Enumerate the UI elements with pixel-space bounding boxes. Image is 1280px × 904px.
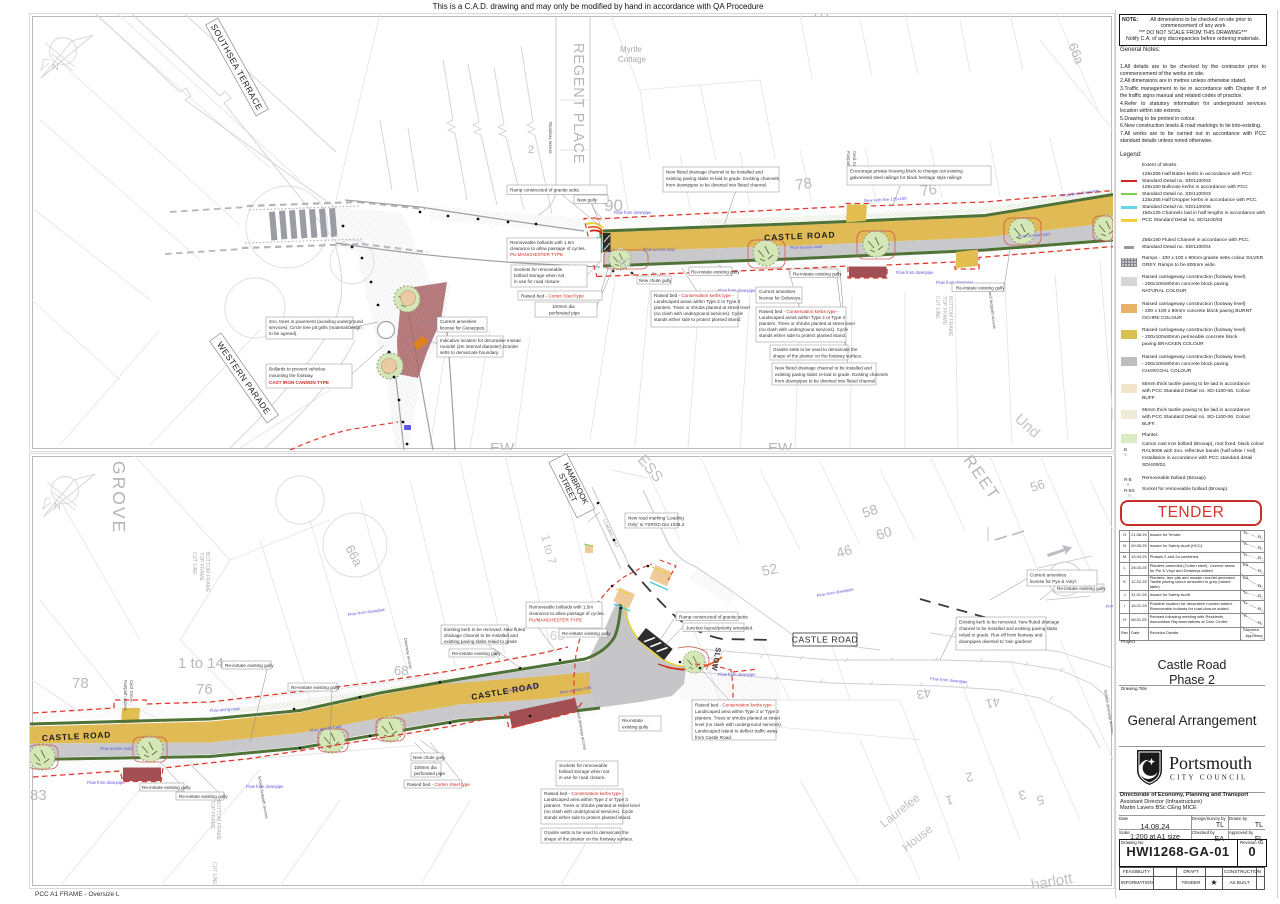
svg-text:to be agreed).: to be agreed).	[269, 331, 298, 336]
svg-text:Ramp constructed of granite se: Ramp constructed of granite setts.	[510, 188, 580, 193]
svg-text:TOP FRAME: TOP FRAME	[198, 552, 204, 582]
svg-text:existing paving slabs re-laid: existing paving slabs re-laid to grade. …	[775, 372, 889, 377]
svg-text:Flow from downpipe: Flow from downpipe	[816, 586, 854, 598]
svg-text:Landscaped area within Type 2: Landscaped area within Type 2 or Type 3	[695, 709, 779, 714]
svg-text:GROVE: GROVE	[109, 461, 129, 534]
svg-text:BOTTOM FRAME: BOTTOM FRAME	[215, 800, 221, 841]
svg-text:planters. Trees or shrubs plan: planters. Trees or shrubs planted at str…	[654, 305, 750, 310]
svg-text:existing gully: existing gully	[622, 725, 649, 730]
svg-text:WESTERN PARADE: WESTERN PARADE	[215, 340, 273, 416]
svg-text:School driveway access: School driveway access	[1103, 689, 1113, 734]
svg-text:CUT LINE: CUT LINE	[934, 296, 940, 319]
svg-text:shape of the planter on the fo: shape of the planter on the footway surf…	[773, 354, 862, 359]
svg-text:relaid to grade. Run-off from: relaid to grade. Run-off from footway an…	[959, 633, 1043, 638]
svg-text:Flow across road: Flow across road	[100, 746, 133, 751]
svg-text:Raised bed - Conservation kerb: Raised bed - Conservation kerbs type -	[654, 293, 734, 298]
svg-text:2: 2	[528, 144, 534, 156]
svg-text:2: 2	[964, 769, 974, 785]
svg-text:87: 87	[618, 254, 635, 272]
svg-text:PU MANCHESTER TYPE: PU MANCHESTER TYPE	[510, 252, 563, 257]
svg-text:Re-instate existing gully: Re-instate existing gully	[562, 631, 611, 636]
svg-text:CAST IRON CANNON TYPE: CAST IRON CANNON TYPE	[269, 380, 329, 385]
svg-text:Flow from downpipe: Flow from downpipe	[1105, 599, 1113, 609]
svg-text:2no. trees in pavement (avoidi: 2no. trees in pavement (avoiding undergr…	[269, 319, 363, 324]
svg-text:SOUTHSEA TERRACE: SOUTHSEA TERRACE	[209, 22, 265, 112]
svg-text:New road marking 'Loading: New road marking 'Loading	[628, 516, 684, 521]
svg-text:Cottage: Cottage	[618, 55, 647, 64]
svg-text:Raised bed - Conservation kerb: Raised bed - Conservation kerbs type -	[544, 791, 624, 796]
svg-text:REGENT PLACE: REGENT PLACE	[570, 43, 586, 164]
svg-text:harlott: harlott	[1030, 870, 1075, 888]
svg-text:Re-instate existing gully: Re-instate existing gully	[179, 794, 228, 799]
svg-text:1 to 7: 1 to 7	[538, 533, 559, 566]
svg-text:Junction layout/priority amend: Junction layout/priority amended.	[686, 626, 753, 631]
svg-text:(no clash with underground ser: (no clash with underground services). Cy…	[544, 809, 634, 814]
svg-text:Flow from downpipe: Flow from downpipe	[246, 784, 284, 789]
svg-text:stands either side to protect: stands either side to protect planted is…	[759, 333, 846, 338]
svg-text:Landscaped areas within Type 2: Landscaped areas within Type 2 or Type 3	[759, 315, 846, 320]
svg-text:Existing kerb to be removed. N: Existing kerb to be removed. New fluted	[444, 627, 526, 632]
svg-text:mounting the footway.: mounting the footway.	[269, 373, 314, 378]
svg-text:Footpath access: Footpath access	[123, 680, 128, 711]
svg-text:Current amenities: Current amenities	[1030, 573, 1067, 578]
svg-text:ESS: ESS	[634, 454, 666, 486]
svg-text:78: 78	[72, 675, 89, 692]
svg-text:Re-instate existing gully: Re-instate existing gully	[291, 685, 340, 690]
svg-text:level (no clash with undergrou: level (no clash with underground service…	[695, 722, 782, 727]
svg-text:bollard storage when not: bollard storage when not	[559, 769, 610, 774]
svg-text:clearance to allow passage of: clearance to allow passage of cycles.	[510, 246, 586, 251]
svg-text:(no clash with underground ser: (no clash with underground services). Cy…	[654, 311, 744, 316]
svg-text:56: 56	[1028, 476, 1046, 495]
svg-text:Sockets for removeable: Sockets for removeable	[559, 763, 608, 768]
svg-text:Re-instate existing gully: Re-instate existing gully	[142, 785, 191, 790]
svg-text:perforated pipe: perforated pipe	[414, 771, 445, 776]
svg-text:New chute gully: New chute gully	[413, 755, 446, 760]
svg-text:TOP FRAME: TOP FRAME	[941, 296, 947, 326]
svg-text:Flow from downpipe: Flow from downpipe	[347, 607, 385, 617]
svg-text:in use for road closure.: in use for road closure.	[559, 775, 606, 780]
svg-text:BOTTOM FRAME: BOTTOM FRAME	[204, 552, 210, 593]
svg-text:Sockets for removeable: Sockets for removeable	[514, 267, 563, 272]
svg-text:Landscaped island to deflect t: Landscaped island to deflect traffic awa…	[695, 729, 778, 734]
svg-text:from Castle Road.: from Castle Road.	[695, 735, 732, 740]
svg-text:76: 76	[196, 681, 213, 698]
svg-text:existing paving slabs re-laid: existing paving slabs re-laid to grade. …	[666, 176, 780, 181]
svg-text:stands either side to protect: stands either side to protect planted is…	[544, 815, 631, 820]
svg-text:46: 46	[834, 541, 854, 561]
svg-text:New kerb line 125x150: New kerb line 125x150	[864, 196, 907, 203]
svg-text:Indicative location for decora: Indicative location for decorative mosai…	[440, 338, 522, 343]
svg-text:Landscaped area within Type 2: Landscaped area within Type 2 or Type 3	[544, 797, 628, 802]
svg-text:Bollards to prevent vehicles: Bollards to prevent vehicles	[269, 367, 326, 372]
svg-text:SLOW: SLOW	[710, 647, 723, 673]
svg-text:66a: 66a	[342, 542, 366, 569]
svg-text:existing paving slabs relaid t: existing paving slabs relaid to grade	[444, 639, 517, 644]
svg-text:CUT LINE: CUT LINE	[211, 862, 217, 885]
svg-text:in use for road closure.: in use for road closure.	[514, 279, 561, 284]
svg-text:BOTTOM FRAME: BOTTOM FRAME	[947, 296, 953, 337]
svg-text:channel to be installed and ex: channel to be installed and existing pav…	[959, 626, 1058, 631]
svg-text:60: 60	[874, 523, 894, 543]
svg-text:Only' to TSRGD Dia 1028.3: Only' to TSRGD Dia 1028.3	[628, 522, 685, 527]
svg-text:Flow from downpipe: Flow from downpipe	[614, 210, 652, 215]
svg-text:Re-instate existing gully: Re-instate existing gully	[691, 270, 740, 275]
svg-text:58: 58	[860, 501, 880, 521]
svg-text:New chute gully: New chute gully	[639, 278, 672, 283]
svg-text:roundel (2m internal diameter): roundel (2m internal diameter).Granite	[440, 344, 518, 349]
svg-text:Raised bed - Conservation kerb: Raised bed - Conservation kerbs type -	[695, 703, 775, 708]
svg-text:Flow from downpipe: Flow from downpipe	[87, 780, 125, 785]
svg-text:Removeable bollards with 1.5m: Removeable bollards with 1.5m	[529, 605, 593, 610]
svg-text:license for Delaneys.: license for Delaneys.	[759, 296, 802, 301]
svg-text:Myrtle: Myrtle	[620, 45, 642, 54]
svg-text:drainage channel to be install: drainage channel to be installed and	[444, 633, 518, 638]
svg-text:Portsmouth: Portsmouth	[1169, 753, 1252, 773]
svg-text:TOP FRAME: TOP FRAME	[209, 800, 215, 830]
svg-text:Cecil Grove: Cecil Grove	[129, 680, 134, 703]
svg-text:from downpipes to be diverted: from downpipes to be diverted into flute…	[666, 183, 767, 188]
svg-text:43: 43	[915, 685, 932, 703]
svg-text:license for Pye & Vinyl.: license for Pye & Vinyl.	[1030, 579, 1077, 584]
svg-text:galvanised steel railings for: galvanised steel railings for black heri…	[850, 175, 963, 180]
svg-text:Landscaped areas within Type 2: Landscaped areas within Type 2 or Type 3	[654, 299, 741, 304]
svg-text:68: 68	[394, 663, 408, 678]
svg-text:41: 41	[984, 694, 1001, 712]
svg-text:license for Giuseppes.: license for Giuseppes.	[440, 326, 485, 331]
svg-text:100mm dia: 100mm dia	[414, 765, 437, 770]
svg-text:from downpipes to be diverted: from downpipes to be diverted into flute…	[775, 379, 876, 384]
svg-text:bollard storage when not: bollard storage when not	[514, 273, 565, 278]
svg-text:Raised bed - Corten Steel type: Raised bed - Corten Steel type	[521, 294, 584, 299]
svg-text:Re-instate: Re-instate	[622, 718, 643, 723]
svg-text:planters. Trees or shrubs plan: planters. Trees or shrubs planted at str…	[695, 716, 781, 721]
svg-text:(no clash with underground ser: (no clash with underground services). Cy…	[759, 327, 849, 332]
svg-text:perforated pipe: perforated pipe	[549, 311, 580, 316]
svg-text:1 to 14: 1 to 14	[178, 655, 224, 672]
svg-text:Raised bed - Corten Steel type: Raised bed - Corten Steel type	[407, 782, 470, 787]
svg-text:downpipes diverted to 'rain ga: downpipes diverted to 'rain gardens'	[959, 639, 1032, 644]
svg-text:Flow from downpipe: Flow from downpipe	[718, 672, 756, 677]
svg-text:Encourage private housing bloc: Encourage private housing block to chang…	[850, 169, 963, 174]
svg-text:Existing kerb to be removed. N: Existing kerb to be removed. New fluted …	[959, 620, 1060, 625]
svg-text:100mm dia: 100mm dia	[552, 304, 575, 309]
svg-text:School footpath access: School footpath access	[987, 286, 997, 330]
svg-text:66a: 66a	[1065, 41, 1087, 67]
svg-text:Ramp constructed of granite se: Ramp constructed of granite setts	[679, 615, 748, 620]
svg-text:Flow from downpipe: Flow from downpipe	[930, 676, 968, 684]
svg-text:Roadway access: Roadway access	[548, 122, 553, 154]
svg-text:clearance to allow passage of: clearance to allow passage of cycles.	[529, 611, 605, 616]
svg-text:111: 111	[812, 14, 831, 20]
svg-text:School footpath access: School footpath access	[257, 775, 269, 819]
svg-text:Re-instate existing gully: Re-instate existing gully	[793, 272, 842, 277]
svg-text:Current amenities: Current amenities	[759, 289, 796, 294]
svg-text:Current amenities: Current amenities	[440, 319, 477, 324]
svg-text:shape of the planter on the fo: shape of the planter on the footway surf…	[544, 837, 633, 842]
svg-text:Re-instate existing gully: Re-instate existing gully	[956, 286, 1005, 291]
svg-text:CITY COUNCIL: CITY COUNCIL	[1170, 774, 1248, 782]
svg-text:New fluted drainage channel to: New fluted drainage channel to be instal…	[775, 366, 872, 371]
svg-text:Re-instate existing gully: Re-instate existing gully	[452, 651, 501, 656]
svg-text:Flow from downpipe: Flow from downpipe	[896, 270, 934, 275]
svg-text:stands either side to protect: stands either side to protect planted is…	[654, 317, 741, 322]
svg-text:Raised bed - Conservation kerb: Raised bed - Conservation kerbs type -	[759, 309, 839, 314]
svg-text:EW: EW	[768, 440, 793, 450]
svg-text:planters. Trees or shrubs plan: planters. Trees or shrubs planted at str…	[759, 321, 855, 326]
svg-text:CUT LINE: CUT LINE	[191, 552, 197, 575]
svg-text:3: 3	[1017, 787, 1027, 803]
svg-text:EW: EW	[490, 440, 515, 450]
svg-text:Und: Und	[1011, 410, 1043, 441]
svg-text:services). Circle tree pit gri: services). Circle tree pit grills (mater…	[269, 325, 362, 330]
svg-text:House: House	[899, 822, 935, 855]
svg-text:83: 83	[30, 787, 47, 804]
svg-text:1: 1	[944, 792, 954, 808]
svg-text:5: 5	[1035, 792, 1045, 808]
svg-text:Re-instate existing gully: Re-instate existing gully	[225, 663, 274, 668]
svg-text:planters. Trees or shrubs plan: planters. Trees or shrubs planted at str…	[544, 803, 640, 808]
svg-text:CASTLE ROAD: CASTLE ROAD	[792, 635, 859, 645]
svg-text:REET: REET	[960, 454, 1003, 504]
svg-text:New gully: New gully	[577, 198, 598, 203]
svg-text:Granite setts to be used to de: Granite setts to be used to demarcate th…	[773, 347, 858, 352]
svg-text:Flow across road: Flow across road	[643, 247, 676, 252]
svg-text:78: 78	[794, 175, 813, 194]
svg-text:Re-instate existing gully: Re-instate existing gully	[1057, 586, 1106, 591]
svg-text:Granite setts to be used to de: Granite setts to be used to demarcate th…	[544, 830, 629, 835]
svg-text:Removeable bollards with 1.5m: Removeable bollards with 1.5m	[510, 240, 574, 245]
svg-text:New fluted drainage channel to: New fluted drainage channel to be instal…	[666, 170, 763, 175]
svg-text:52: 52	[760, 560, 779, 579]
svg-text:PU/MANCHESTER TYPE: PU/MANCHESTER TYPE	[529, 618, 582, 623]
svg-text:setts to demarcate boundary.: setts to demarcate boundary.	[440, 350, 499, 355]
